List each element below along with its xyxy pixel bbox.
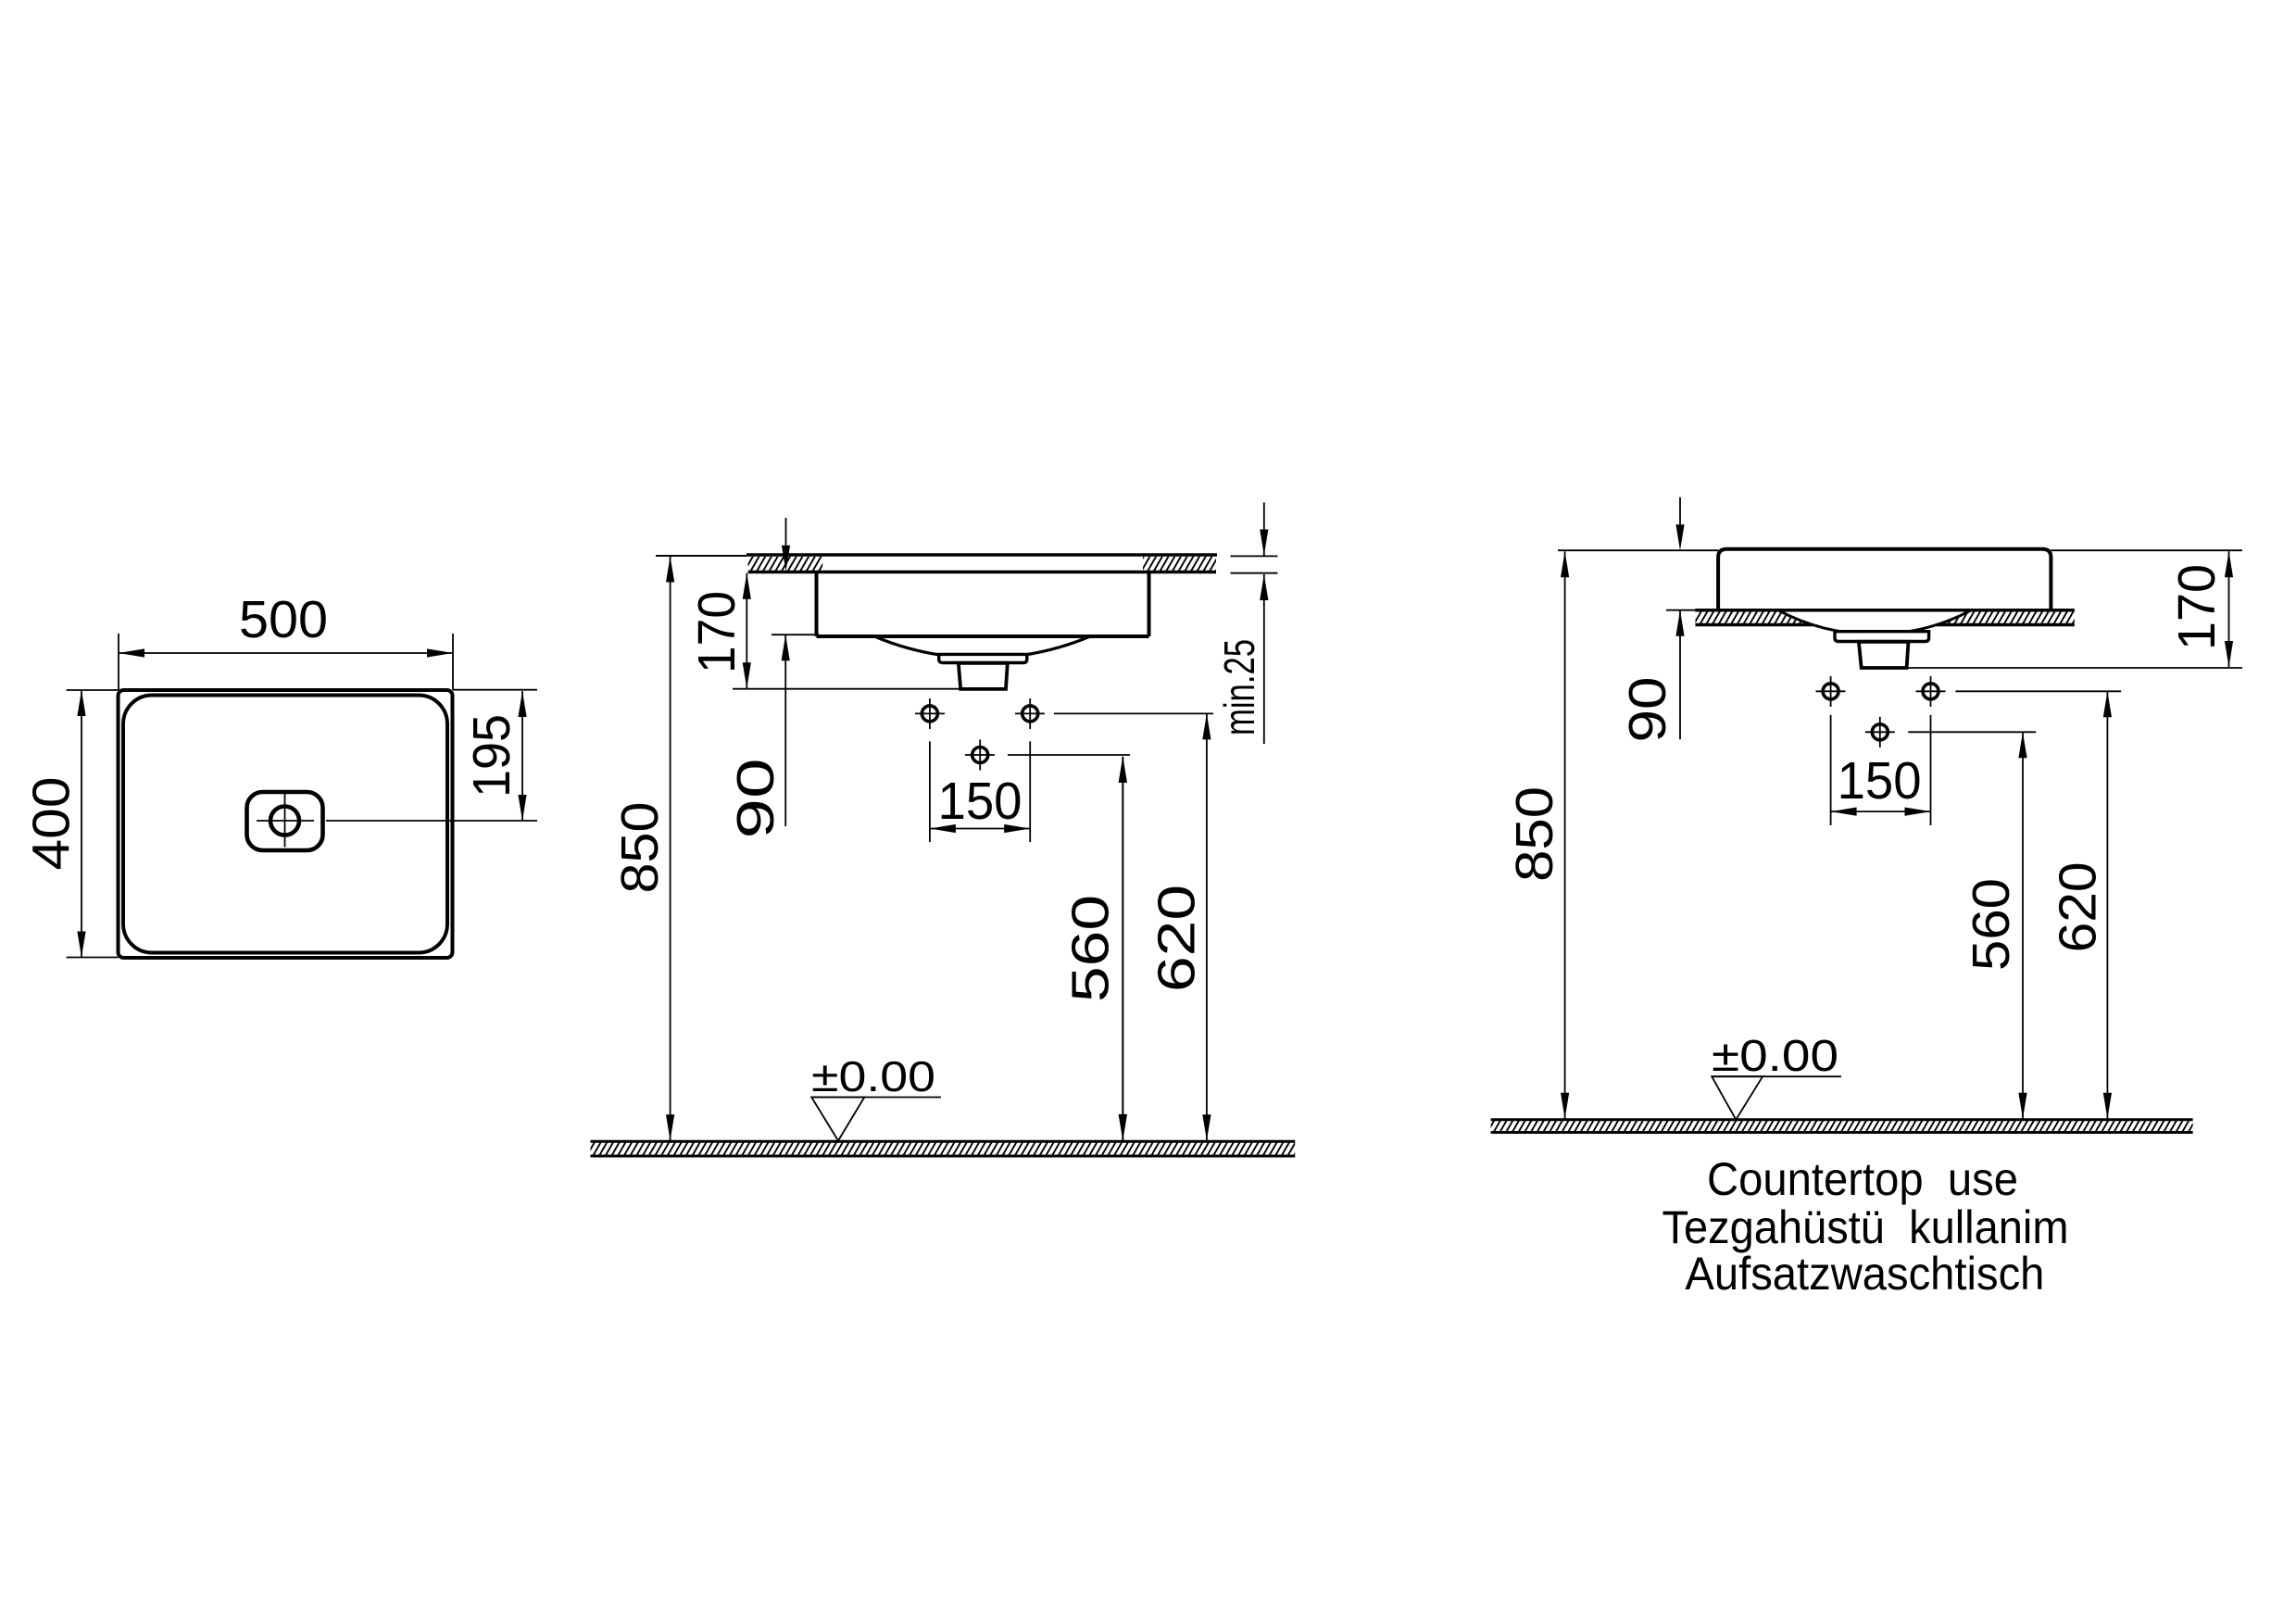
svg-text:850: 850 bbox=[610, 802, 670, 894]
svg-text:620: 620 bbox=[2049, 861, 2108, 952]
svg-text:±0.00: ±0.00 bbox=[811, 1052, 935, 1100]
svg-text:Aufsatzwaschtisch: Aufsatzwaschtisch bbox=[1685, 1248, 2044, 1300]
svg-text:90: 90 bbox=[726, 759, 785, 839]
svg-text:Countertop use: Countertop use bbox=[1707, 1153, 2018, 1205]
svg-text:150: 150 bbox=[938, 772, 1023, 831]
svg-text:195: 195 bbox=[462, 714, 521, 798]
svg-text:560: 560 bbox=[1061, 895, 1121, 1002]
svg-text:min.25: min.25 bbox=[1215, 639, 1263, 735]
svg-text:170: 170 bbox=[687, 591, 747, 673]
svg-text:Tezgahüstü kullanim: Tezgahüstü kullanim bbox=[1662, 1201, 2069, 1253]
svg-text:150: 150 bbox=[1838, 751, 1922, 810]
svg-text:560: 560 bbox=[1962, 878, 2021, 971]
svg-text:620: 620 bbox=[1148, 885, 1207, 992]
svg-text:±0.00: ±0.00 bbox=[1712, 1032, 1838, 1081]
svg-text:90: 90 bbox=[1618, 677, 1677, 743]
svg-text:400: 400 bbox=[22, 777, 82, 871]
svg-text:500: 500 bbox=[239, 590, 328, 649]
svg-text:170: 170 bbox=[2167, 564, 2227, 650]
svg-text:850: 850 bbox=[1505, 786, 1564, 882]
